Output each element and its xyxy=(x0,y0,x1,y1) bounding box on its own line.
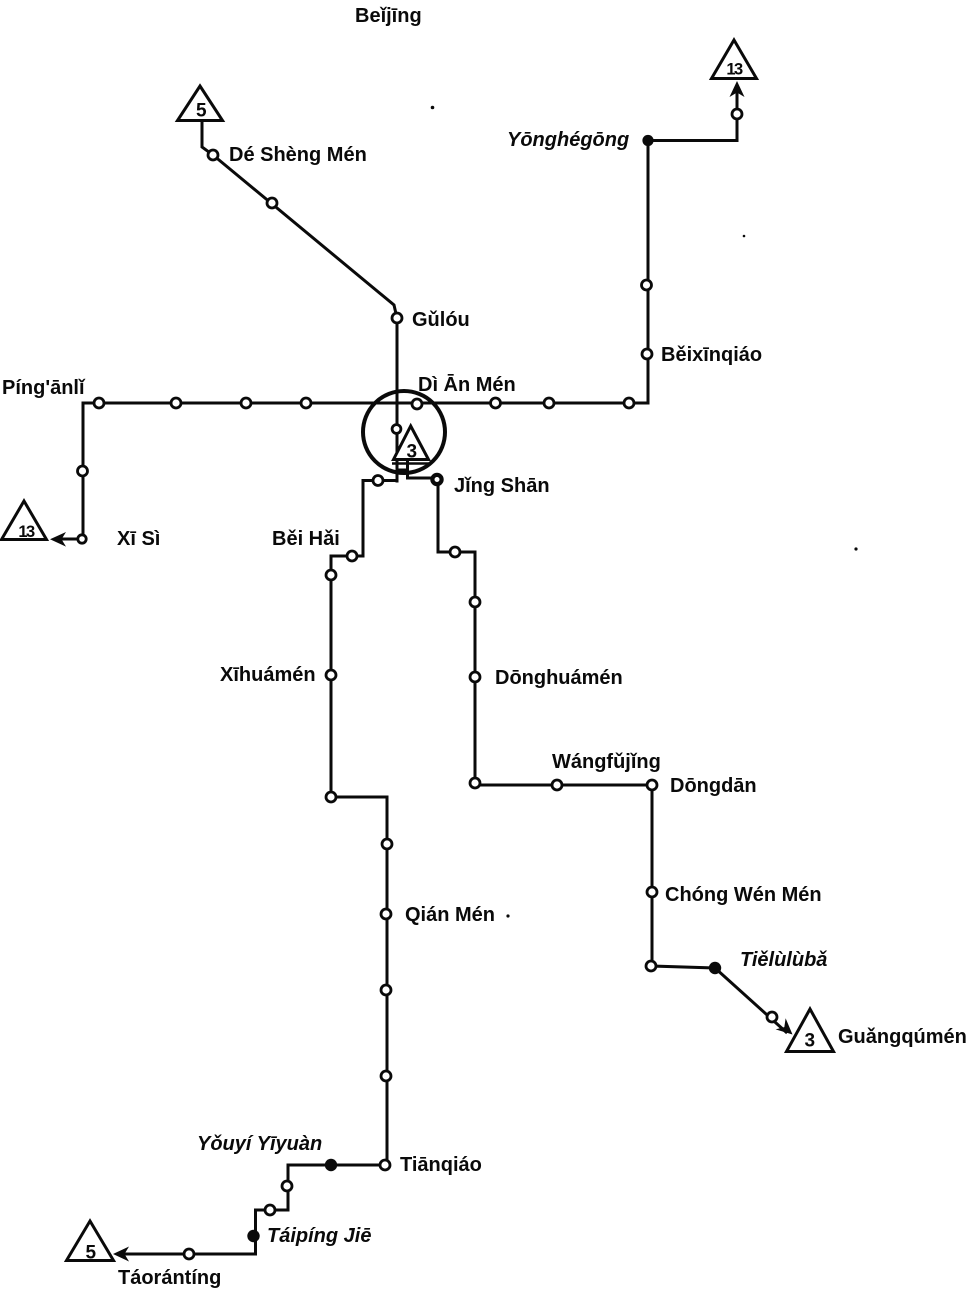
svg-text:Xīhuámén: Xīhuámén xyxy=(220,664,316,686)
svg-text:Jǐng Shān: Jǐng Shān xyxy=(454,475,550,497)
svg-text:Guǎngqúmén: Guǎngqúmén xyxy=(838,1026,967,1048)
svg-text:3: 3 xyxy=(406,442,416,463)
svg-text:Qián Mén: Qián Mén xyxy=(405,904,495,926)
svg-text:Dōngdān: Dōngdān xyxy=(670,775,757,797)
svg-text:Beǐjīng: Beǐjīng xyxy=(355,5,422,27)
svg-text:Gǔlóu: Gǔlóu xyxy=(412,309,470,331)
svg-text:Táorántíng: Táorántíng xyxy=(118,1267,221,1289)
svg-text:Píng'ānlǐ: Píng'ānlǐ xyxy=(2,377,86,399)
svg-text:Dì Ān Mén: Dì Ān Mén xyxy=(418,374,516,396)
svg-text:Běi Hǎi: Běi Hǎi xyxy=(272,528,340,550)
svg-text:13: 13 xyxy=(726,61,743,79)
svg-text:13: 13 xyxy=(18,523,35,541)
svg-text:Wángfǔjǐng: Wángfǔjǐng xyxy=(552,751,661,773)
svg-text:Dé Shèng Mén: Dé Shèng Mén xyxy=(229,144,367,166)
svg-text:Tiělùlùbǎ: Tiělùlùbǎ xyxy=(740,949,827,971)
svg-text:Tiānqiáo: Tiānqiáo xyxy=(400,1154,482,1176)
svg-text:3: 3 xyxy=(804,1031,814,1052)
svg-text:5: 5 xyxy=(85,1243,96,1264)
svg-text:Yōnghégōng: Yōnghégōng xyxy=(507,129,629,151)
svg-text:5: 5 xyxy=(196,101,207,122)
svg-text:Táipíng Jiē: Táipíng Jiē xyxy=(267,1225,371,1247)
svg-text:Yǒuyí Yīyuàn: Yǒuyí Yīyuàn xyxy=(197,1133,322,1155)
svg-text:Běixīnqiáo: Běixīnqiáo xyxy=(661,344,762,366)
svg-text:Xī Sì: Xī Sì xyxy=(117,528,160,550)
svg-text:Dōnghuámén: Dōnghuámén xyxy=(495,667,623,689)
svg-text:Chóng Wén Mén: Chóng Wén Mén xyxy=(665,884,822,906)
